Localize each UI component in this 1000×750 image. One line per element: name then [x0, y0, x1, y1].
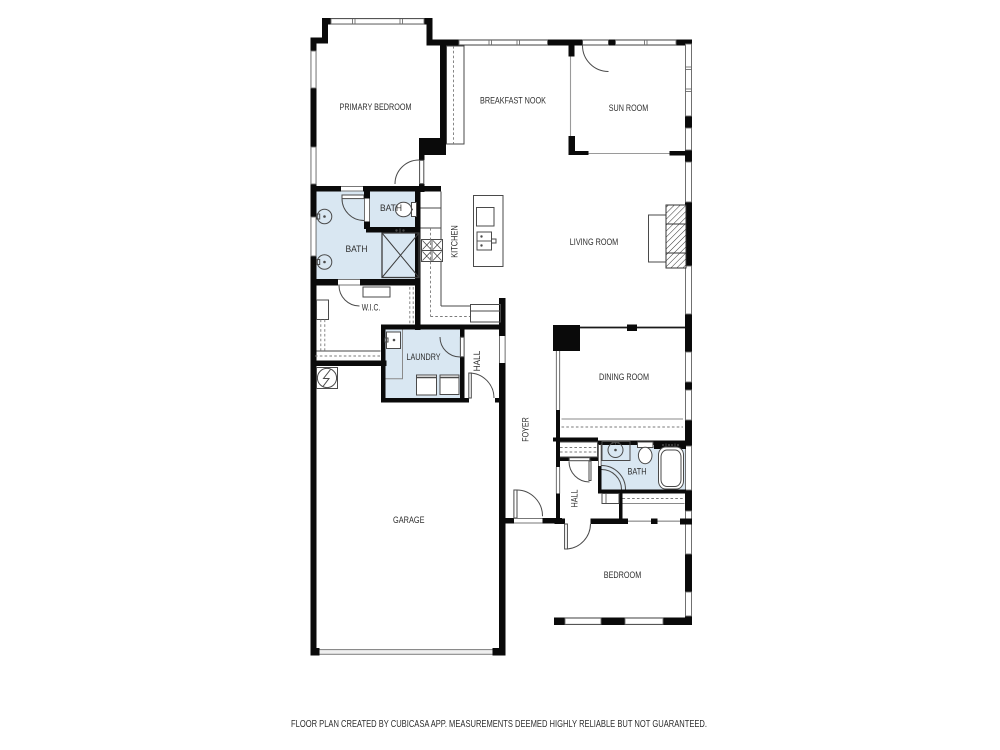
svg-text:FLOOR PLAN CREATED BY CUBICASA: FLOOR PLAN CREATED BY CUBICASA APP. MEAS…	[291, 719, 707, 730]
svg-text:BEDROOM: BEDROOM	[604, 570, 642, 580]
svg-text:BATH: BATH	[380, 203, 402, 213]
svg-text:HALL: HALL	[570, 490, 580, 508]
svg-text:SUN ROOM: SUN ROOM	[609, 103, 649, 113]
svg-text:LAUNDRY: LAUNDRY	[407, 352, 441, 362]
svg-text:PRIMARY BEDROOM: PRIMARY BEDROOM	[340, 102, 412, 112]
svg-text:BREAKFAST NOOK: BREAKFAST NOOK	[480, 96, 546, 106]
svg-text:HALL: HALL	[472, 351, 482, 372]
svg-text:W.I.C.: W.I.C.	[362, 303, 381, 313]
svg-text:LIVING ROOM: LIVING ROOM	[570, 237, 619, 247]
svg-text:BATH: BATH	[628, 467, 647, 477]
svg-text:KITCHEN: KITCHEN	[450, 225, 460, 258]
svg-text:FOYER: FOYER	[521, 417, 531, 442]
svg-text:DINING ROOM: DINING ROOM	[599, 372, 649, 382]
svg-text:GARAGE: GARAGE	[393, 515, 425, 525]
svg-text:BATH: BATH	[346, 244, 368, 254]
